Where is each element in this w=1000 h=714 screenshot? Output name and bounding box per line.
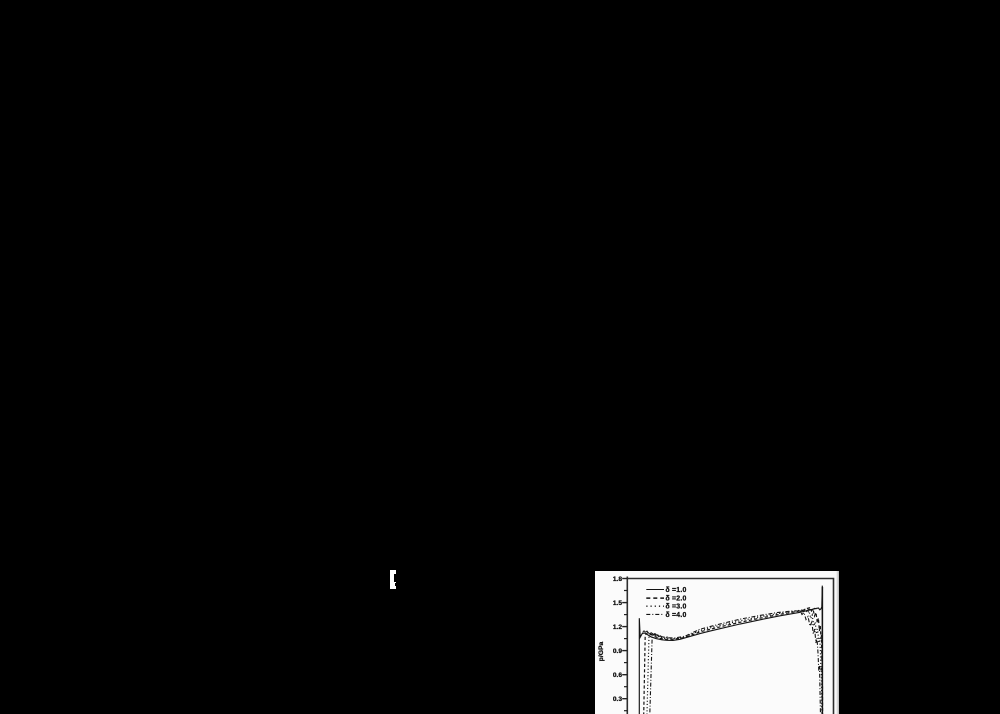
svg-text:δ =1.0: δ =1.0	[666, 587, 687, 594]
svg-text:0.3: 0.3	[613, 696, 622, 703]
svg-text:1.2: 1.2	[613, 624, 622, 631]
svg-text:0.9: 0.9	[613, 648, 622, 655]
svg-text:1.5: 1.5	[613, 600, 622, 607]
svg-text:δ =3.0: δ =3.0	[666, 604, 687, 611]
svg-text:δ =2.0: δ =2.0	[666, 596, 687, 603]
svg-text:1.8: 1.8	[613, 576, 622, 583]
svg-text:δ =4.0: δ =4.0	[666, 612, 687, 619]
svg-text:0.6: 0.6	[613, 672, 622, 679]
svg-text:p/GPa: p/GPa	[598, 641, 605, 661]
